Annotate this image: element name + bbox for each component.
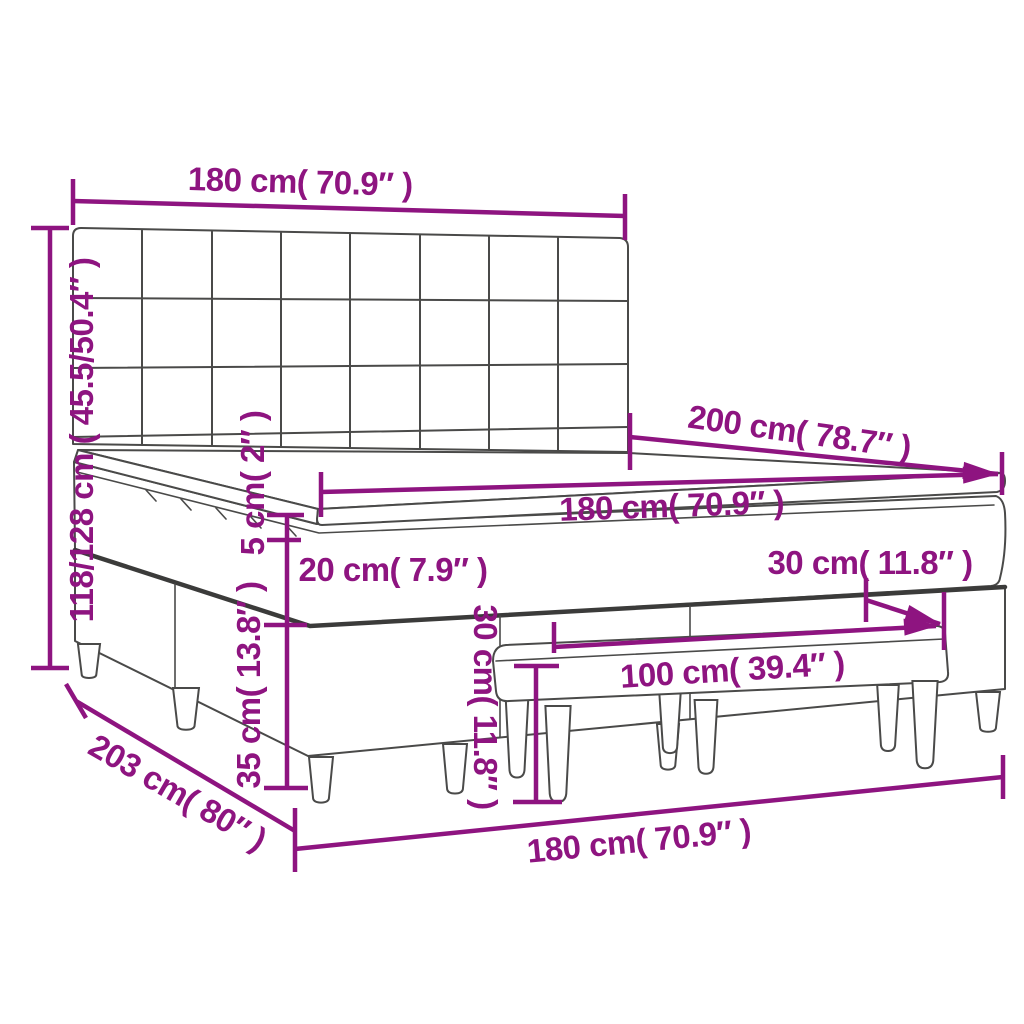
dim-mattress-width-label: 180 cm( 70.9″ ) bbox=[559, 483, 785, 528]
dim-bench-height-label: 30 cm( 11.8″ ) bbox=[467, 604, 504, 809]
headboard bbox=[73, 228, 628, 452]
dim-headboard-width-label: 180 cm( 70.9″ ) bbox=[187, 160, 413, 203]
dim-mattress-thickness-label: 20 cm( 7.9″ ) bbox=[298, 551, 487, 588]
bench-leg bbox=[506, 696, 529, 777]
bench-leg bbox=[877, 685, 899, 751]
dim-overall-height: 118/128 cm ( 45.5/50.4″ ) bbox=[31, 228, 100, 668]
bed-leg bbox=[309, 757, 333, 803]
bench-leg bbox=[912, 681, 937, 768]
bed-diagram-canvas: 180 cm( 70.9″ ) 118/128 cm ( 45.5/50.4″ … bbox=[0, 0, 1024, 1024]
dim-bench-depth-label: 30 cm( 11.8″ ) bbox=[767, 544, 972, 581]
bed-leg bbox=[78, 644, 100, 678]
dim-overall-height-label: 118/128 cm ( 45.5/50.4″ ) bbox=[63, 258, 100, 623]
bed-leg bbox=[976, 692, 1000, 732]
bed-leg bbox=[173, 688, 199, 730]
dimension-diagram: 180 cm( 70.9″ ) 118/128 cm ( 45.5/50.4″ … bbox=[0, 0, 1024, 1024]
dim-base-height-label: 35 cm( 13.8″ ) bbox=[230, 582, 267, 789]
bench-leg bbox=[545, 706, 570, 802]
dim-bed-width-floor: 180 cm( 70.9″ ) bbox=[295, 755, 1003, 870]
bed-leg bbox=[443, 744, 467, 793]
bench-leg bbox=[695, 700, 718, 774]
dim-headboard-width: 180 cm( 70.9″ ) bbox=[73, 160, 625, 240]
bench-leg bbox=[659, 691, 681, 753]
dim-topper-thickness-label: 5 cm( 2″ ) bbox=[234, 411, 271, 556]
